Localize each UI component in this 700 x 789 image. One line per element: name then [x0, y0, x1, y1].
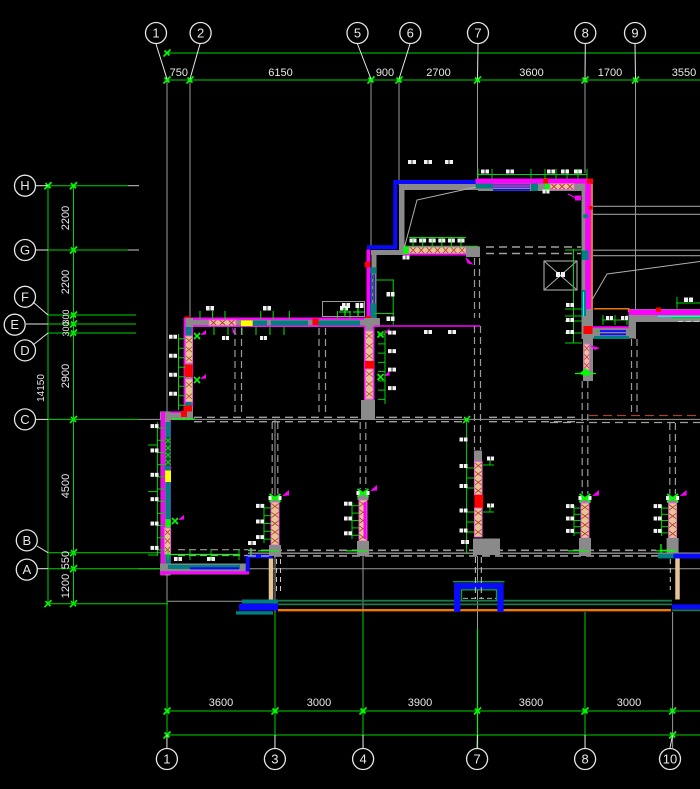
svg-text:8: 8: [581, 752, 588, 767]
svg-text:G: G: [20, 243, 30, 258]
svg-text:6: 6: [407, 26, 414, 41]
svg-text:900: 900: [376, 67, 394, 79]
svg-text:2700: 2700: [426, 67, 450, 79]
svg-text:3600: 3600: [519, 67, 543, 79]
svg-text:3000: 3000: [617, 697, 641, 709]
svg-text:3550: 3550: [672, 67, 696, 79]
svg-text:8: 8: [582, 26, 589, 41]
svg-text:H: H: [20, 178, 29, 193]
svg-text:14150: 14150: [36, 374, 47, 402]
svg-text:3600: 3600: [519, 697, 543, 709]
svg-text:750: 750: [170, 67, 188, 79]
svg-text:9: 9: [631, 26, 638, 41]
svg-text:3900: 3900: [408, 697, 432, 709]
svg-text:550: 550: [60, 551, 72, 569]
svg-text:10: 10: [663, 752, 677, 767]
svg-text:2200: 2200: [60, 270, 72, 294]
svg-text:2200: 2200: [60, 206, 72, 230]
svg-text:4: 4: [359, 752, 366, 767]
svg-text:7: 7: [473, 752, 480, 767]
svg-text:6150: 6150: [268, 67, 292, 79]
svg-text:E: E: [10, 317, 19, 332]
svg-text:300: 300: [61, 321, 71, 336]
svg-text:1: 1: [152, 26, 159, 41]
svg-text:7: 7: [474, 26, 481, 41]
svg-text:B: B: [22, 533, 31, 548]
svg-text:4500: 4500: [60, 474, 72, 498]
svg-text:3: 3: [271, 752, 278, 767]
svg-text:D: D: [20, 343, 29, 358]
svg-text:A: A: [22, 562, 31, 577]
svg-text:F: F: [21, 289, 29, 304]
svg-text:5: 5: [354, 26, 361, 41]
svg-text:2900: 2900: [60, 364, 72, 388]
svg-text:1: 1: [163, 752, 170, 767]
svg-text:1700: 1700: [598, 67, 622, 79]
svg-text:2: 2: [197, 26, 204, 41]
svg-text:3600: 3600: [209, 697, 233, 709]
svg-text:1200: 1200: [60, 574, 72, 598]
svg-text:C: C: [20, 412, 29, 427]
svg-text:3000: 3000: [307, 697, 331, 709]
